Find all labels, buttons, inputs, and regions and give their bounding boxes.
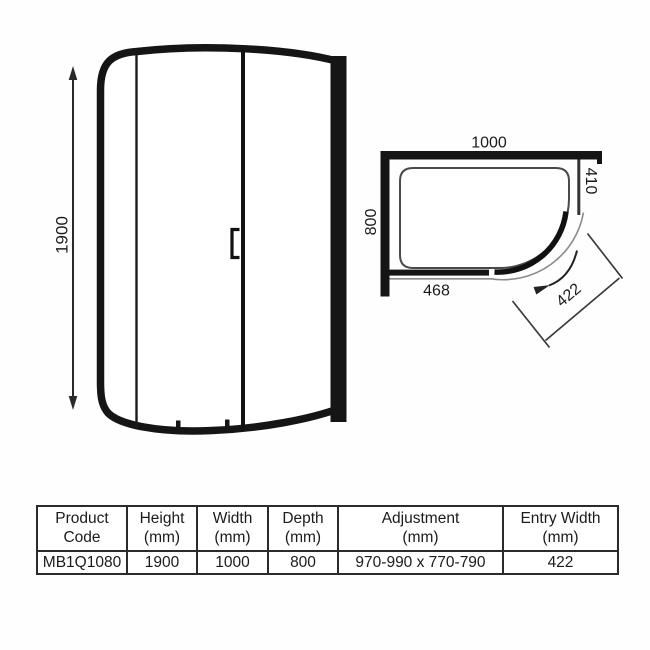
col-header-adjustment: Adjustment (mm) — [338, 506, 503, 551]
front-elevation-view: 1900 — [53, 48, 347, 431]
entry-dim-ext-line-top — [588, 234, 623, 279]
col-header-line1: Entry Width — [504, 509, 617, 528]
col-header-entry-width: Entry Width (mm) — [503, 506, 618, 551]
plan-width-label: 1000 — [471, 135, 507, 152]
col-header-width: Width (mm) — [197, 506, 268, 551]
cell-adjustment: 970-990 x 770-790 — [338, 551, 503, 574]
right-frame-bar — [331, 56, 347, 422]
col-header-line2: (mm) — [269, 528, 337, 547]
height-dimension: 1900 — [53, 66, 78, 410]
table-data-row: MB1Q1080 1900 1000 800 970-990 x 770-790… — [37, 551, 618, 574]
height-arrow-up-icon — [69, 66, 78, 80]
col-header-line2: Code — [38, 528, 126, 547]
col-header-height: Height (mm) — [127, 506, 197, 551]
col-header-line2: (mm) — [339, 528, 502, 547]
front-panel-width-label: 468 — [423, 283, 450, 300]
cell-entry-width: 422 — [503, 551, 618, 574]
col-header-line2: (mm) — [128, 528, 196, 547]
bottom-rail-guide-right — [225, 420, 230, 427]
shower-enclosure-spec-sheet: 1900 422 1000 800 410 468 — [0, 0, 650, 650]
col-header-line2: (mm) — [504, 528, 617, 547]
table-header-row: Product Code Height (mm) Width (mm) Dept… — [37, 506, 618, 551]
col-header-line1: Width — [198, 509, 267, 528]
plan-view: 422 1000 800 410 468 — [363, 135, 623, 348]
entry-width-label: 422 — [553, 280, 584, 310]
col-header-line1: Product — [38, 509, 126, 528]
cell-width: 1000 — [197, 551, 268, 574]
wall-left — [381, 151, 390, 297]
cell-height: 1900 — [127, 551, 197, 574]
specification-table: Product Code Height (mm) Width (mm) Dept… — [36, 505, 619, 575]
col-header-line1: Height — [128, 509, 196, 528]
cell-product-code: MB1Q1080 — [37, 551, 127, 574]
wall-top-end-cap — [597, 160, 602, 165]
col-header-line2: (mm) — [198, 528, 267, 547]
col-header-line1: Adjustment — [339, 509, 502, 528]
col-header-line1: Depth — [269, 509, 337, 528]
height-arrow-down-icon — [69, 396, 78, 410]
height-dimension-label: 1900 — [53, 216, 72, 254]
bottom-rail-guide-left — [176, 421, 181, 428]
entry-dim-ext-line-bottom — [513, 301, 550, 348]
fixed-panel-bottom — [390, 270, 490, 276]
col-header-depth: Depth (mm) — [268, 506, 338, 551]
entry-dim-line — [546, 278, 620, 341]
wall-top — [381, 151, 603, 160]
plan-depth-label: 800 — [363, 209, 380, 236]
col-header-product-code: Product Code — [37, 506, 127, 551]
side-panel-width-label: 410 — [582, 168, 599, 195]
cell-depth: 800 — [268, 551, 338, 574]
